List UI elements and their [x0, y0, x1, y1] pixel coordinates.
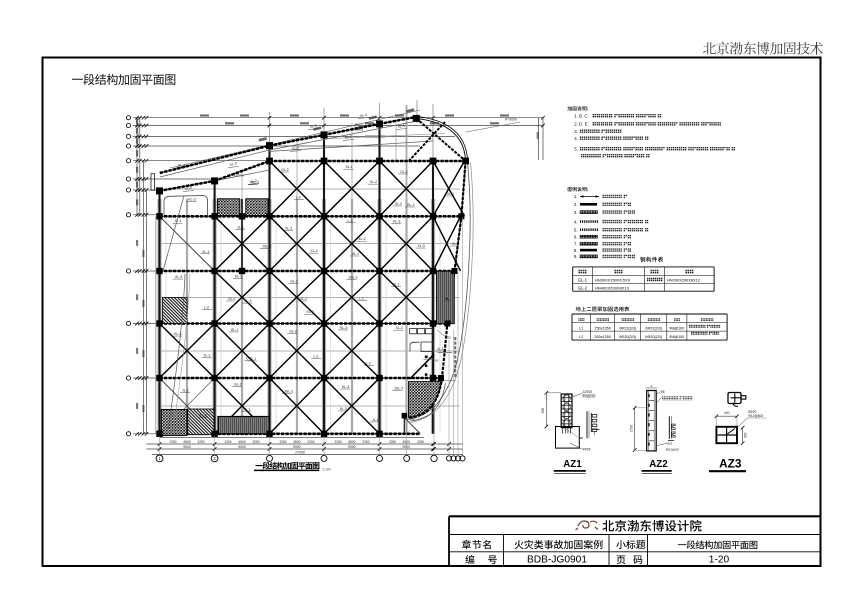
svg-text:XL-3: XL-3	[244, 299, 251, 303]
svg-text:4.: 4.	[574, 136, 578, 141]
svg-text:BDB-JG0901: BDB-JG0901	[527, 555, 587, 566]
svg-text:2250: 2250	[362, 440, 369, 444]
svg-text:XL-2: XL-2	[395, 202, 402, 206]
svg-text:XL-1: XL-1	[243, 407, 250, 411]
svg-text:GL-1: GL-1	[231, 328, 239, 332]
svg-text:Φ8@100: Φ8@100	[669, 335, 684, 339]
svg-text:AZ3: AZ3	[719, 457, 742, 471]
svg-text:27000: 27000	[295, 451, 305, 455]
svg-text:JGL-2: JGL-2	[348, 275, 357, 279]
svg-text:JL-1: JL-1	[237, 226, 244, 230]
svg-text:2250: 2250	[307, 440, 314, 444]
svg-text:5.: 5.	[574, 227, 578, 232]
svg-text:2250: 2250	[252, 440, 259, 444]
svg-text:5.: 5.	[574, 146, 578, 151]
svg-text:XL-2: XL-2	[358, 237, 365, 241]
svg-text:M22: M22	[666, 442, 672, 446]
svg-text:L-2: L-2	[366, 362, 371, 366]
svg-text:KL-3: KL-3	[188, 198, 195, 202]
svg-text:8.: 8.	[574, 248, 578, 253]
svg-text:XL-1: XL-1	[236, 172, 243, 176]
svg-text:XL-2: XL-2	[300, 297, 307, 301]
svg-text:GL-2: GL-2	[289, 329, 297, 333]
svg-text:XL-2: XL-2	[285, 227, 292, 231]
svg-text:XL-3: XL-3	[175, 275, 182, 279]
svg-text:2250: 2250	[279, 440, 286, 444]
svg-text:GL-2: GL-2	[228, 297, 235, 301]
svg-text:XL-1: XL-1	[352, 252, 359, 256]
svg-text:2250: 2250	[197, 440, 204, 444]
svg-text:6Φ22(3/3): 6Φ22(3/3)	[619, 326, 636, 330]
svg-text:Φ6@200: Φ6@200	[583, 395, 596, 399]
svg-text:L-2: L-2	[347, 219, 352, 223]
svg-text:9000: 9000	[183, 445, 191, 449]
svg-text:300x1350: 300x1350	[595, 335, 611, 339]
svg-text:9000: 9000	[238, 445, 246, 449]
svg-text:L1: L1	[579, 326, 583, 330]
svg-text:3.: 3.	[574, 129, 578, 134]
svg-text:6Φ20(3/3): 6Φ20(3/3)	[619, 335, 636, 339]
svg-text:XL-2: XL-2	[370, 180, 377, 184]
svg-text:22Φ20: 22Φ20	[583, 390, 593, 394]
svg-text:GL-2: GL-2	[234, 383, 242, 387]
svg-text:M20: M20	[445, 336, 451, 340]
svg-text:3.: 3.	[574, 210, 578, 215]
svg-text:GL-1: GL-1	[290, 279, 298, 283]
svg-text:2250: 2250	[417, 440, 424, 444]
svg-text:4Φ25: 4Φ25	[583, 447, 591, 451]
svg-text:KL-3: KL-3	[178, 163, 185, 167]
svg-text:L-2: L-2	[296, 196, 301, 200]
svg-text:GL-2: GL-2	[400, 170, 408, 174]
svg-text:KL-3: KL-3	[307, 310, 314, 314]
svg-text:XL-2: XL-2	[199, 413, 206, 417]
svg-text:GL-1: GL-1	[407, 203, 415, 207]
svg-text:JGL-2: JGL-2	[394, 386, 403, 390]
svg-text:1. B. C: 1. B. C	[574, 113, 587, 118]
svg-text:GL-1: GL-1	[578, 278, 588, 283]
svg-text:A2: A2	[435, 359, 439, 363]
svg-text:HN400X200X8X13: HN400X200X8X13	[595, 286, 630, 291]
svg-text:XL-2: XL-2	[310, 249, 317, 253]
svg-text:GL-2: GL-2	[578, 286, 588, 291]
svg-text:Φ8: Φ8	[579, 436, 583, 440]
svg-text:1750: 1750	[629, 425, 633, 433]
svg-text:4.: 4.	[574, 219, 578, 224]
svg-text:4500: 4500	[183, 440, 191, 444]
svg-text:KL-3: KL-3	[174, 332, 181, 336]
svg-text:JL-1: JL-1	[407, 415, 414, 419]
svg-text:250x1350: 250x1350	[595, 326, 611, 330]
svg-text:9000: 9000	[402, 445, 410, 449]
svg-text:JGL-2: JGL-2	[284, 390, 293, 394]
svg-text:L-2: L-2	[313, 355, 318, 359]
svg-text:JL-1: JL-1	[182, 389, 189, 393]
svg-text:HN300X150X6.5X9: HN300X150X6.5X9	[595, 278, 631, 283]
svg-text:2. D. E: 2. D. E	[574, 122, 587, 127]
svg-text:KL-3: KL-3	[393, 219, 400, 223]
svg-text:Φ6: Φ6	[660, 390, 665, 394]
svg-text:Φ12@600: Φ12@600	[748, 414, 763, 418]
svg-text:6.: 6.	[574, 234, 578, 239]
svg-text:6Φ22(2/3): 6Φ22(2/3)	[645, 326, 662, 330]
svg-text:XL-1: XL-1	[445, 297, 452, 301]
svg-text:JL-1: JL-1	[250, 357, 257, 361]
svg-text:XL-2: XL-2	[452, 242, 459, 246]
svg-text:9.: 9.	[574, 254, 578, 259]
svg-text:2250: 2250	[169, 440, 176, 444]
svg-text:HN200X200X8X12: HN200X200X8X12	[667, 278, 700, 283]
svg-text:R=5000: R=5000	[505, 118, 517, 122]
svg-text:1.: 1.	[574, 194, 578, 199]
svg-text:AZ2: AZ2	[649, 459, 668, 470]
svg-text:2250: 2250	[224, 440, 231, 444]
svg-text:4500: 4500	[402, 440, 410, 444]
svg-text:XL-3: XL-3	[417, 244, 424, 248]
svg-text:9000: 9000	[348, 445, 356, 449]
svg-text:L-1: L-1	[359, 296, 364, 300]
svg-text:KL-3: KL-3	[340, 407, 347, 411]
svg-text:1:100: 1:100	[323, 467, 331, 471]
svg-text:Φ8@100: Φ8@100	[669, 326, 684, 330]
svg-text:8Φ20: 8Φ20	[748, 410, 756, 414]
svg-text:JL-1: JL-1	[372, 418, 379, 422]
svg-text:4500: 4500	[348, 440, 356, 444]
svg-text:9000: 9000	[293, 445, 301, 449]
svg-text:JL-1: JL-1	[393, 282, 400, 286]
svg-text:JL-1: JL-1	[437, 347, 444, 351]
svg-text:200: 200	[743, 432, 747, 438]
svg-text:KL-3: KL-3	[342, 385, 349, 389]
svg-text:2.: 2.	[574, 202, 578, 207]
svg-text:XL-1: XL-1	[346, 165, 353, 169]
svg-text:6Φ20(2/3): 6Φ20(2/3)	[645, 335, 662, 339]
svg-text:JL-1: JL-1	[175, 219, 182, 223]
svg-text:400: 400	[724, 411, 730, 415]
svg-text:7.: 7.	[574, 241, 578, 246]
svg-text:KL-3: KL-3	[340, 326, 347, 330]
svg-text:L-2: L-2	[204, 306, 209, 310]
svg-text:JGL-2: JGL-2	[262, 244, 271, 248]
svg-text:KL-3: KL-3	[235, 275, 242, 279]
svg-text:4500: 4500	[238, 440, 246, 444]
svg-text:650: 650	[541, 408, 545, 414]
svg-text:JL-1: JL-1	[425, 355, 432, 359]
svg-text:AZ1: AZ1	[563, 459, 582, 470]
svg-text:GL-2: GL-2	[281, 168, 289, 172]
svg-text:1-20: 1-20	[709, 555, 730, 566]
svg-text:XL-1: XL-1	[447, 192, 454, 196]
svg-text:ΦS2@S0: ΦS2@S0	[666, 448, 679, 452]
svg-text:L2: L2	[579, 335, 583, 339]
svg-text:JL-1: JL-1	[204, 354, 211, 358]
svg-text:XL-1: XL-1	[202, 250, 209, 254]
svg-text:XL-2: XL-2	[396, 326, 403, 330]
svg-text:2250: 2250	[334, 440, 341, 444]
svg-text:4500: 4500	[293, 440, 301, 444]
svg-text:2250: 2250	[389, 440, 396, 444]
